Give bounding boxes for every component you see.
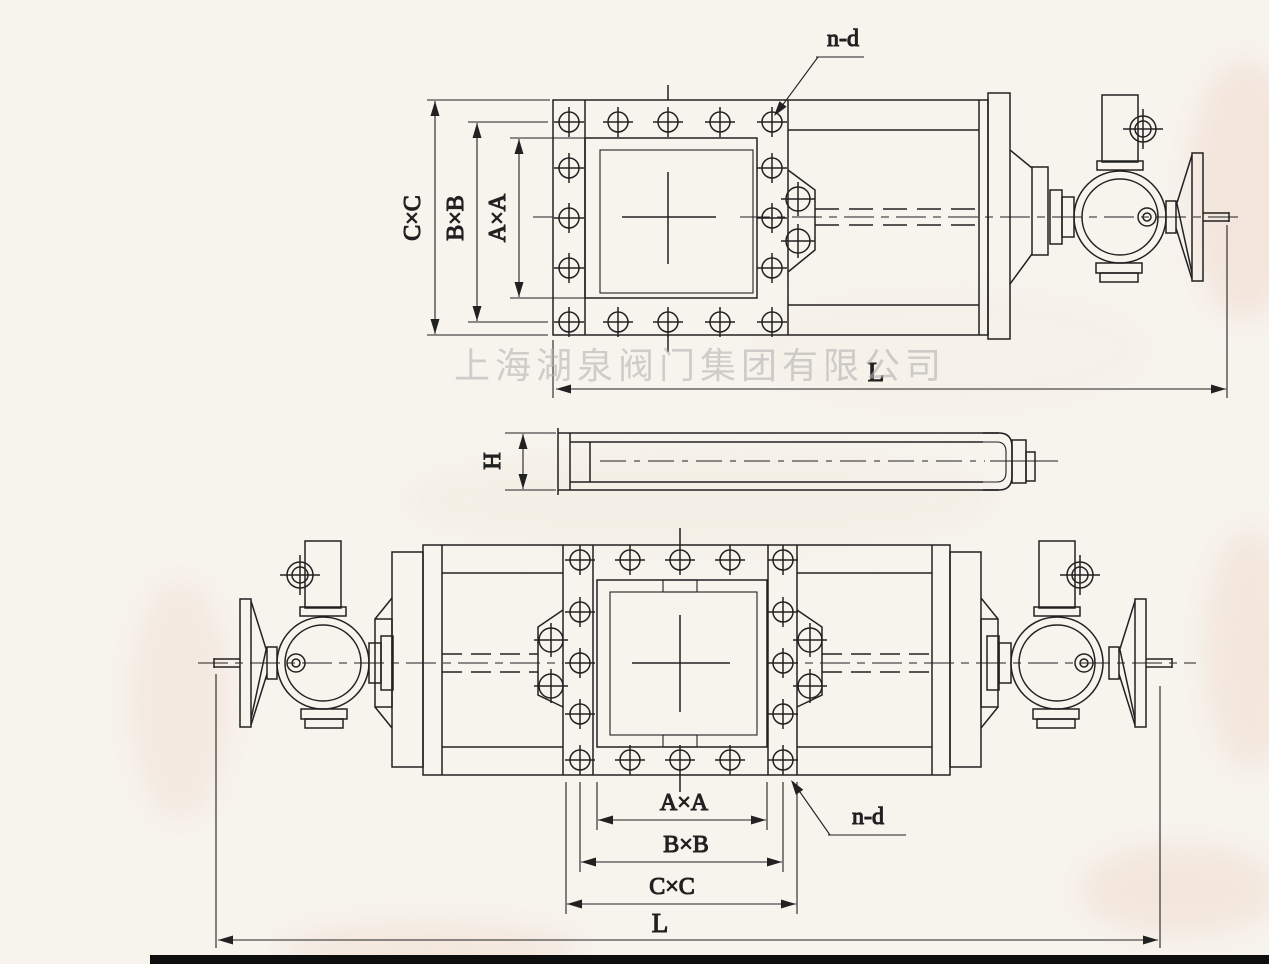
bolt-hole xyxy=(565,745,595,775)
dim-label-bxb-bottom: B×B xyxy=(663,832,709,858)
dim-label-cxc-bottom: C×C xyxy=(649,874,695,900)
valve-body-bottom xyxy=(198,528,1196,792)
bolt-hole xyxy=(768,699,798,729)
bolt-hole xyxy=(565,597,595,627)
bolt-hole xyxy=(715,745,745,775)
gate-valve-technical-drawing: C×C B×B A×A n-d L 上海湖泉阀门集团有限公司 xyxy=(0,0,1269,964)
bolt-hole xyxy=(603,307,633,337)
bolt-hole xyxy=(554,307,584,337)
bolt-hole xyxy=(665,745,695,775)
bolt-hole xyxy=(705,307,735,337)
bolt-hole xyxy=(705,107,735,137)
paper-stains xyxy=(130,60,1269,964)
bolt-hole xyxy=(565,699,595,729)
watermark: 上海湖泉阀门集团有限公司 xyxy=(454,346,946,387)
gearbox xyxy=(987,541,1103,728)
bolt-hole xyxy=(757,107,787,137)
bolt-hole xyxy=(554,253,584,283)
bolt-callout-top: n-d xyxy=(770,26,864,119)
length-label-bottom: L xyxy=(652,908,669,938)
bottom-view: A×A B×B C×C n-d L xyxy=(198,528,1196,948)
dim-label-cxc-top: C×C xyxy=(400,195,426,241)
bolt-hole xyxy=(615,545,645,575)
bolt-callout-bottom: n-d xyxy=(787,777,906,835)
actuator-bottom-left xyxy=(214,541,423,767)
dim-label-axa-top: A×A xyxy=(485,193,511,242)
actuator-bottom-right xyxy=(950,541,1172,767)
dim-label-axa-bottom: A×A xyxy=(660,790,709,816)
dim-label-h: H xyxy=(480,452,506,469)
bolt-hole xyxy=(768,597,798,627)
bolt-hole xyxy=(768,745,798,775)
bolt-hole xyxy=(565,545,595,575)
bolt-holes-top xyxy=(554,107,815,337)
bolt-note-top: n-d xyxy=(827,26,859,52)
bolt-hole xyxy=(757,253,787,283)
bolt-hole xyxy=(757,153,787,183)
bolt-note-bottom: n-d xyxy=(852,804,884,830)
dim-label-bxb-top: B×B xyxy=(443,195,469,241)
bolt-hole xyxy=(603,107,633,137)
bolt-hole xyxy=(653,307,683,337)
bolt-hole xyxy=(554,153,584,183)
scan-edge xyxy=(150,955,1269,964)
bolt-hole xyxy=(768,545,798,575)
bolt-hole xyxy=(757,203,787,233)
bolt-hole xyxy=(615,745,645,775)
bolt-hole xyxy=(554,107,584,137)
bolt-hole xyxy=(565,648,595,678)
bolt-hole xyxy=(653,107,683,137)
bolt-hole xyxy=(768,648,798,678)
bolt-hole xyxy=(554,203,584,233)
gusset-bolt-hole xyxy=(781,224,815,258)
dimension-axa-bottom: A×A xyxy=(597,782,767,830)
gearbox xyxy=(1050,95,1166,282)
